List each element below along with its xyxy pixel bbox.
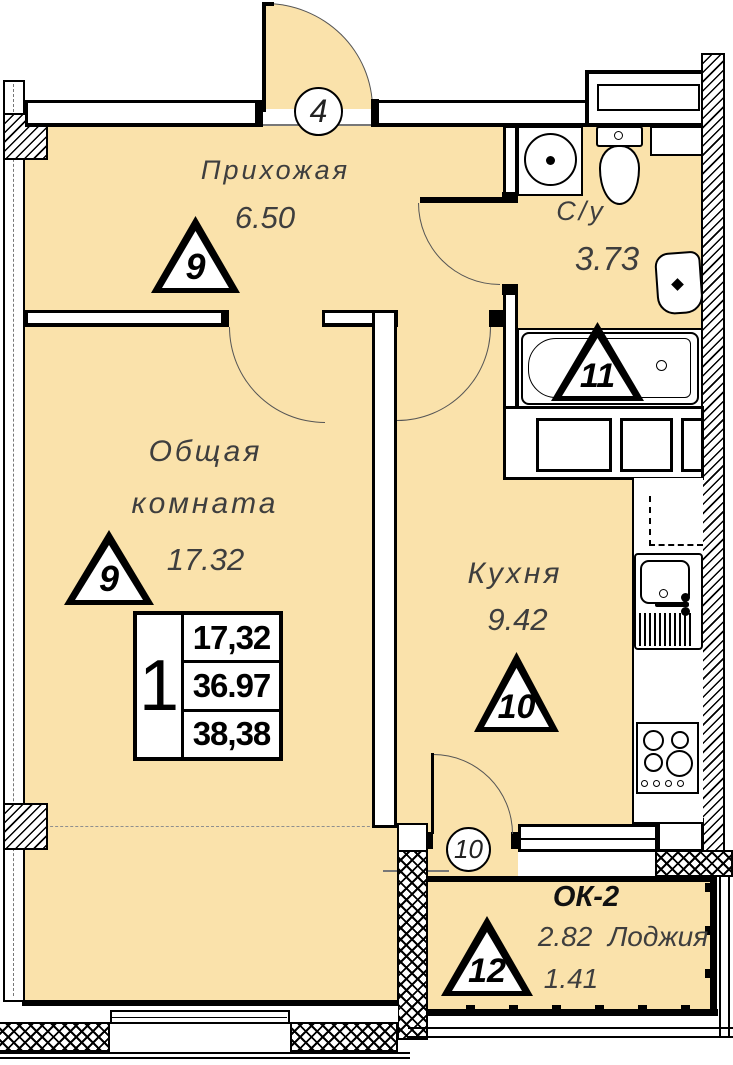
wall-living-kitchen <box>372 310 397 828</box>
triangle-number: 12 <box>441 952 533 991</box>
kitchen-faucet-knob-1 <box>681 593 690 602</box>
stove-burner-tr <box>671 731 689 749</box>
loggia-code: ОК-2 <box>536 881 636 914</box>
kitchen-drainboard <box>639 613 692 646</box>
wall-hallway-living <box>25 310 228 327</box>
triangle-number: 10 <box>474 688 559 727</box>
wall-kitchen-corner-hatch <box>655 850 733 877</box>
railing-post <box>705 883 714 892</box>
hallway-name: Прихожая <box>188 155 363 186</box>
usable-area-cell: 36.97 <box>184 663 279 711</box>
railing-post <box>552 1005 561 1014</box>
wall-bottom-hatch-left <box>0 1022 110 1052</box>
bathroom-shelf <box>650 126 703 156</box>
entrance-door-tick <box>262 2 274 6</box>
stove-knob <box>653 780 660 787</box>
balcony-outer-line-right-2 <box>728 877 730 1037</box>
balcony-door-jamb-right <box>511 832 518 849</box>
bathroom-niche <box>597 84 700 111</box>
balcony-outer-line-bottom-2 <box>408 1036 733 1038</box>
triangle-marker-loggia: 12 <box>441 916 533 996</box>
stove-burner-bl <box>644 753 663 772</box>
fridge-space-dashed <box>649 496 703 546</box>
axis-circle-top: 4 <box>294 87 343 136</box>
triangle-number: 9 <box>151 246 240 288</box>
railing-post <box>705 969 714 978</box>
total-area-cell: 38,38 <box>184 712 279 757</box>
floor-plan: Прихожая 6.50 С/у 3.73 Общая комната 17.… <box>0 0 733 1065</box>
balcony-outer-line-right-1 <box>719 877 721 1037</box>
railing-post <box>681 1005 690 1014</box>
wall-balcony-left <box>397 850 428 1040</box>
bottom-outer-line-1 <box>0 1052 410 1054</box>
apartment-info-table: 1 17,32 36.97 38,38 <box>133 611 283 761</box>
vent-opening-3 <box>681 418 704 472</box>
vent-opening-1 <box>536 418 612 472</box>
living-window <box>110 1010 290 1024</box>
living-room-area: 17.32 <box>158 542 253 578</box>
triangle-marker-kitchen: 10 <box>474 652 559 732</box>
living-door-jamb <box>221 310 229 327</box>
kitchen-name: Кухня <box>460 557 570 591</box>
bathtub-drain <box>656 360 667 371</box>
axis-circle-number: 4 <box>310 93 328 130</box>
stove-knob <box>641 780 648 787</box>
toilet-tank-button <box>614 131 623 140</box>
bathroom-area: 3.73 <box>568 240 646 278</box>
railing-post <box>466 1005 475 1014</box>
loggia-counted-area: 1.41 <box>536 963 606 995</box>
wall-left-centerline <box>13 84 14 996</box>
railing-post <box>595 1005 604 1014</box>
balcony-door-leaf <box>431 753 434 834</box>
bottom-outer-line-2 <box>0 1057 410 1059</box>
kitchen-sink-drain <box>659 589 668 598</box>
wall-right <box>701 53 725 853</box>
wall-left <box>3 80 25 1002</box>
triangle-marker-living: 9 <box>64 530 154 605</box>
areas-column: 17,32 36.97 38,38 <box>184 615 279 757</box>
railing-post <box>509 1005 518 1014</box>
entrance-door-leaf <box>262 2 266 112</box>
loggia-full-area: 2.82 <box>538 921 593 952</box>
wall-balcony-corner <box>397 823 428 852</box>
triangle-marker-hallway: 9 <box>151 216 240 293</box>
living-window-glazing <box>112 1017 287 1019</box>
triangle-marker-bathroom: 11 <box>551 322 644 401</box>
living-room-name-1: Общая <box>133 435 278 469</box>
loggia-name: Лоджия <box>608 921 708 952</box>
stove-burner-tl <box>643 730 664 751</box>
washing-machine-dot <box>546 156 555 165</box>
triangle-number: 11 <box>551 357 644 396</box>
bathroom-door-jamb-top <box>502 192 518 203</box>
kitchen-door-jamb <box>489 310 503 327</box>
entrance-jamb-right <box>371 99 379 127</box>
kitchen-window <box>518 824 658 852</box>
living-room-name-2: комната <box>120 487 290 521</box>
stove-knob <box>665 780 672 787</box>
balcony-door-jamb-left <box>426 832 433 849</box>
wall-column-bottom-left <box>3 803 48 850</box>
wall-top-left <box>25 100 258 127</box>
triangle-number: 9 <box>64 558 154 600</box>
wall-bathroom-left-lower <box>503 284 518 410</box>
loggia-line: 2.82 Лоджия <box>528 921 718 953</box>
living-area-cell: 17,32 <box>184 615 279 663</box>
wall-bathroom-left-upper <box>503 125 518 195</box>
living-room-dashed-line <box>30 826 390 827</box>
rooms-count-cell: 1 <box>137 615 184 757</box>
balcony-outer-line-bottom-1 <box>408 1027 733 1029</box>
vent-opening-2 <box>620 418 673 472</box>
stove-burner-br <box>666 750 693 777</box>
axis-circle-bottom: 10 <box>446 827 491 872</box>
bathroom-door-jamb-bottom <box>502 284 518 295</box>
wall-top-right <box>372 100 589 127</box>
stove-knob <box>677 780 684 787</box>
bathroom-door-floor <box>503 195 518 285</box>
kitchen-window-glazing <box>521 838 655 840</box>
kitchen-area: 9.42 <box>480 602 555 638</box>
railing-post <box>638 1005 647 1014</box>
bathroom-name: С/у <box>550 196 612 227</box>
axis-circle-number: 10 <box>454 834 483 865</box>
wall-bottom-hatch-right <box>290 1022 398 1052</box>
